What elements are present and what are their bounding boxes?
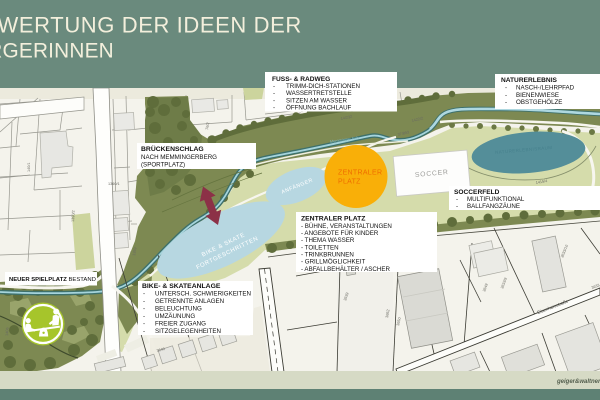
svg-text:-: -	[143, 298, 145, 305]
svg-text:ÖFFNUNG BACHLAUF: ÖFFNUNG BACHLAUF	[286, 104, 352, 111]
svg-text:SITZEN AM WASSER: SITZEN AM WASSER	[286, 97, 347, 104]
svg-text:TRIMM-DICH-STATIONEN: TRIMM-DICH-STATIONEN	[286, 83, 360, 90]
svg-text:NATURERLEBNIS: NATURERLEBNIS	[501, 77, 558, 84]
svg-text:BALLFANGZÄUNE: BALLFANGZÄUNE	[467, 203, 520, 210]
svg-text:- TRINKBRUNNEN: - TRINKBRUNNEN	[301, 252, 354, 259]
svg-text:BELEUCHTUNG: BELEUCHTUNG	[155, 306, 202, 313]
svg-text:1390/2: 1390/2	[71, 210, 76, 222]
svg-text:NEUER SPIELPLATZ BESTAND: NEUER SPIELPLATZ BESTAND	[9, 277, 96, 283]
svg-text:NACH MEMMINGERBERG: NACH MEMMINGERBERG	[141, 154, 217, 161]
svg-text:-: -	[273, 90, 275, 97]
svg-text:-: -	[273, 104, 275, 111]
svg-text:-: -	[143, 328, 145, 335]
svg-text:PLATZ: PLATZ	[338, 179, 361, 186]
svg-text:1406: 1406	[5, 327, 10, 336]
svg-text:ZENTRALER: ZENTRALER	[338, 170, 382, 177]
svg-text:BRÜCKENSCHLAG: BRÜCKENSCHLAG	[141, 144, 204, 153]
svg-text:FUSS- & RADWEG: FUSS- & RADWEG	[272, 76, 330, 83]
svg-text:MULTIFUNKTIONAL: MULTIFUNKTIONAL	[467, 196, 525, 203]
svg-text:140/1: 140/1	[27, 162, 31, 172]
svg-text:-: -	[505, 99, 507, 106]
svg-text:ZENTRALER PLATZ: ZENTRALER PLATZ	[301, 216, 365, 223]
svg-text:UMZÄUNUNG: UMZÄUNUNG	[155, 313, 195, 320]
svg-text:SITZGELEGENHEITEN: SITZGELEGENHEITEN	[155, 328, 221, 335]
svg-text:-: -	[505, 92, 507, 99]
svg-text:UNTERSCH. SCHWIERIGKEITEN: UNTERSCH. SCHWIERIGKEITEN	[155, 291, 251, 298]
svg-text:(SPORTPLATZ): (SPORTPLATZ)	[141, 162, 185, 169]
svg-text:- ABFALLBEHÄLTER / ASCHER: - ABFALLBEHÄLTER / ASCHER	[301, 266, 390, 273]
svg-text:-: -	[143, 321, 145, 328]
svg-text:-: -	[273, 83, 275, 90]
svg-text:NASCH-/LEHRPFAD: NASCH-/LEHRPFAD	[516, 85, 575, 92]
svg-text:WASSERTRETSTELLE: WASSERTRETSTELLE	[286, 90, 352, 97]
svg-text:- THEMA WASSER: - THEMA WASSER	[301, 237, 355, 244]
svg-text:1360/1: 1360/1	[108, 182, 120, 186]
svg-text:geiger&waltner landschaftsarch: geiger&waltner landschaftsarchitekten	[556, 379, 600, 385]
svg-text:- BÜHNE, VERANSTALTUNGEN: - BÜHNE, VERANSTALTUNGEN	[301, 223, 392, 230]
svg-text:-: -	[143, 291, 145, 298]
svg-text:- GRILLMÖGLICHKEIT: - GRILLMÖGLICHKEIT	[301, 259, 366, 266]
svg-text:BIENENWIESE: BIENENWIESE	[516, 92, 559, 99]
svg-text:-: -	[273, 97, 275, 104]
svg-text:GETRENNTE ANLAGEN: GETRENNTE ANLAGEN	[155, 298, 224, 305]
svg-text:- ANGEBOTE FÜR KINDER: - ANGEBOTE FÜR KINDER	[301, 230, 379, 237]
svg-text:-: -	[456, 203, 458, 210]
svg-text:- TOILETTEN: - TOILETTEN	[301, 244, 339, 251]
svg-text:-: -	[456, 196, 458, 203]
svg-text:BEWERTUNG DER IDEEN DER: BEWERTUNG DER IDEEN DER	[0, 13, 302, 38]
svg-text:-: -	[143, 313, 145, 320]
svg-text:BÜRGERINNEN: BÜRGERINNEN	[0, 40, 114, 63]
svg-text:-: -	[505, 85, 507, 92]
svg-text:BIKE- & SKATEANLAGE: BIKE- & SKATEANLAGE	[142, 283, 221, 290]
svg-text:OBSTGEHÖLZE: OBSTGEHÖLZE	[516, 99, 562, 106]
svg-text:FREIER ZUGANG: FREIER ZUGANG	[155, 321, 206, 328]
svg-text:-: -	[143, 306, 145, 313]
